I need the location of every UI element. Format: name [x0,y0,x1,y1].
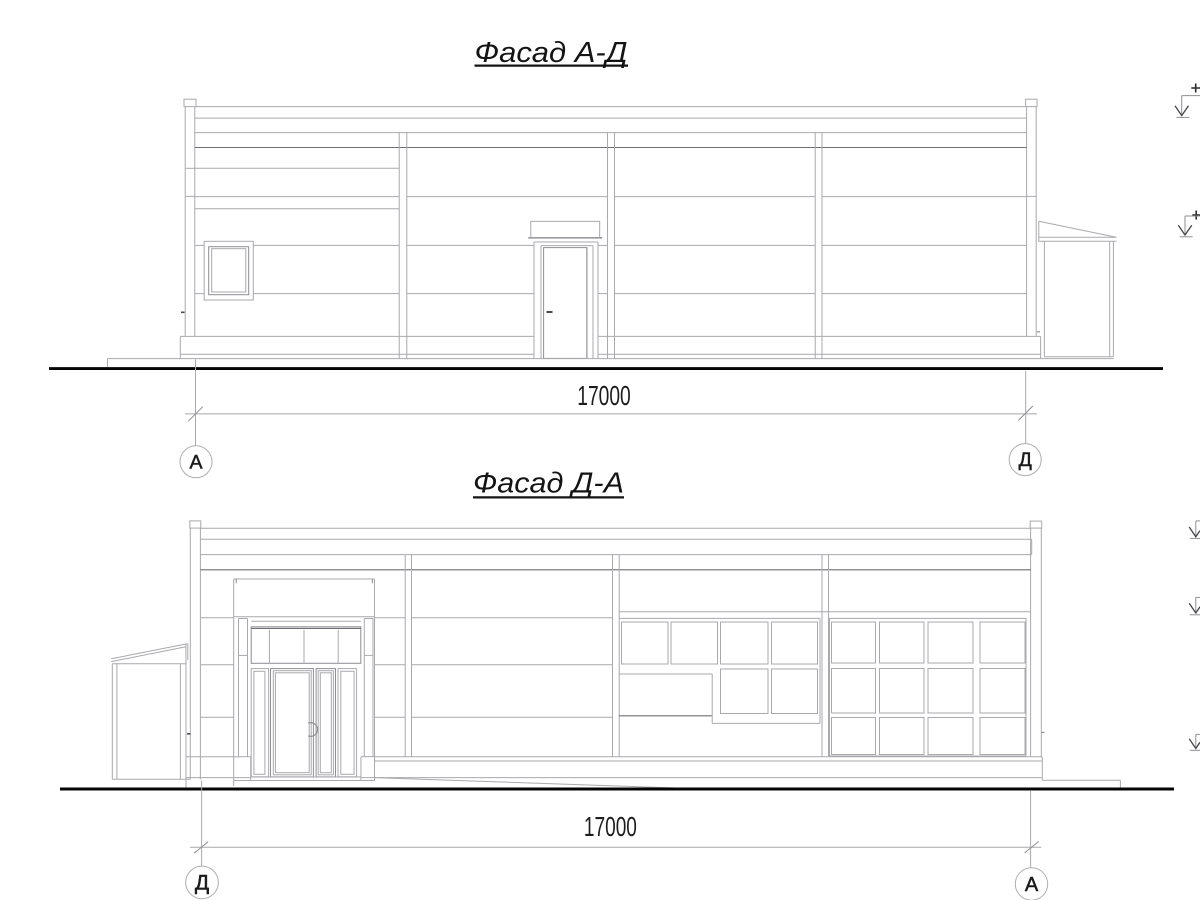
svg-text:17000: 17000 [584,811,637,842]
svg-text:Фасад Д-А: Фасад Д-А [473,468,624,500]
svg-text:А: А [189,451,202,473]
svg-text:Фасад А-Д: Фасад А-Д [475,37,628,69]
svg-text:Д: Д [195,871,209,894]
svg-text:17000: 17000 [577,380,631,411]
svg-text:А: А [1025,874,1039,896]
svg-text:Д: Д [1019,449,1032,471]
